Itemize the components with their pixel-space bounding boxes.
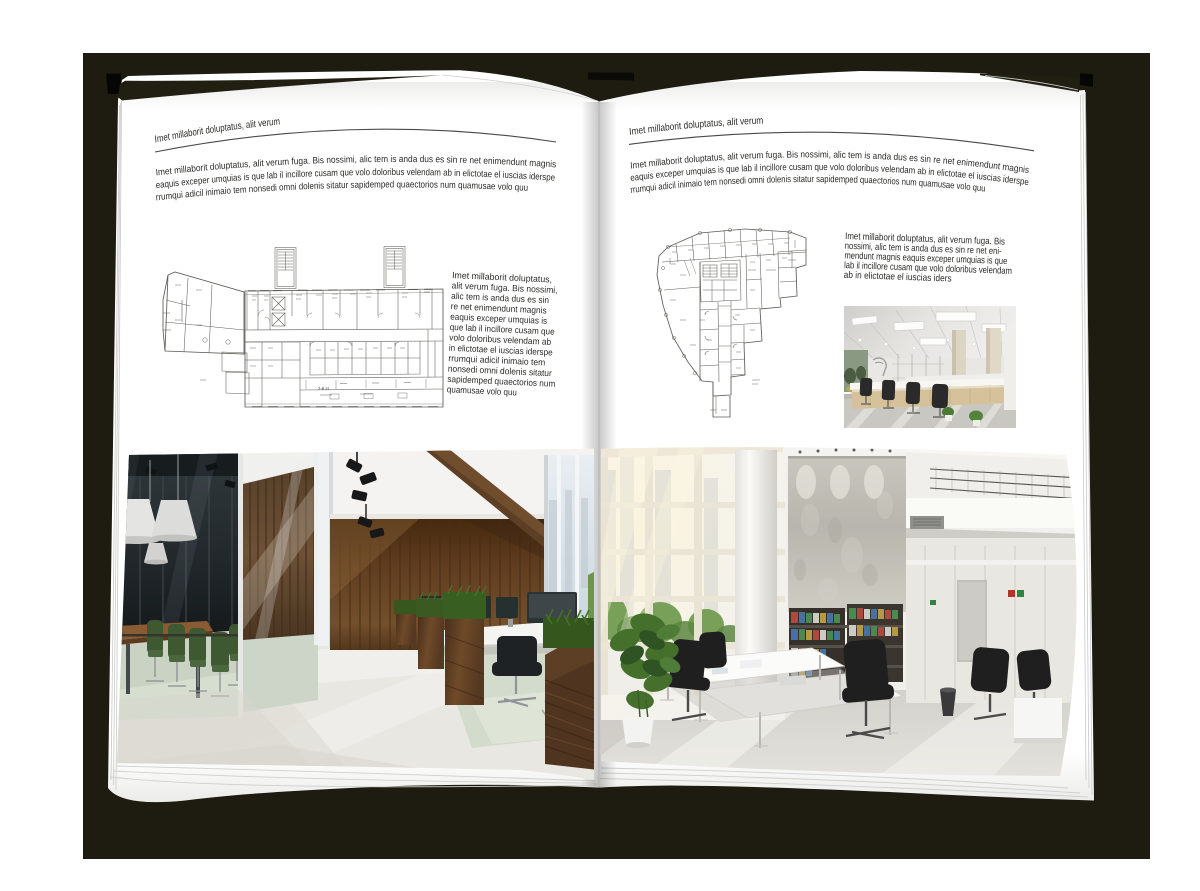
svg-text:2-й эт: 2-й эт — [318, 386, 329, 391]
